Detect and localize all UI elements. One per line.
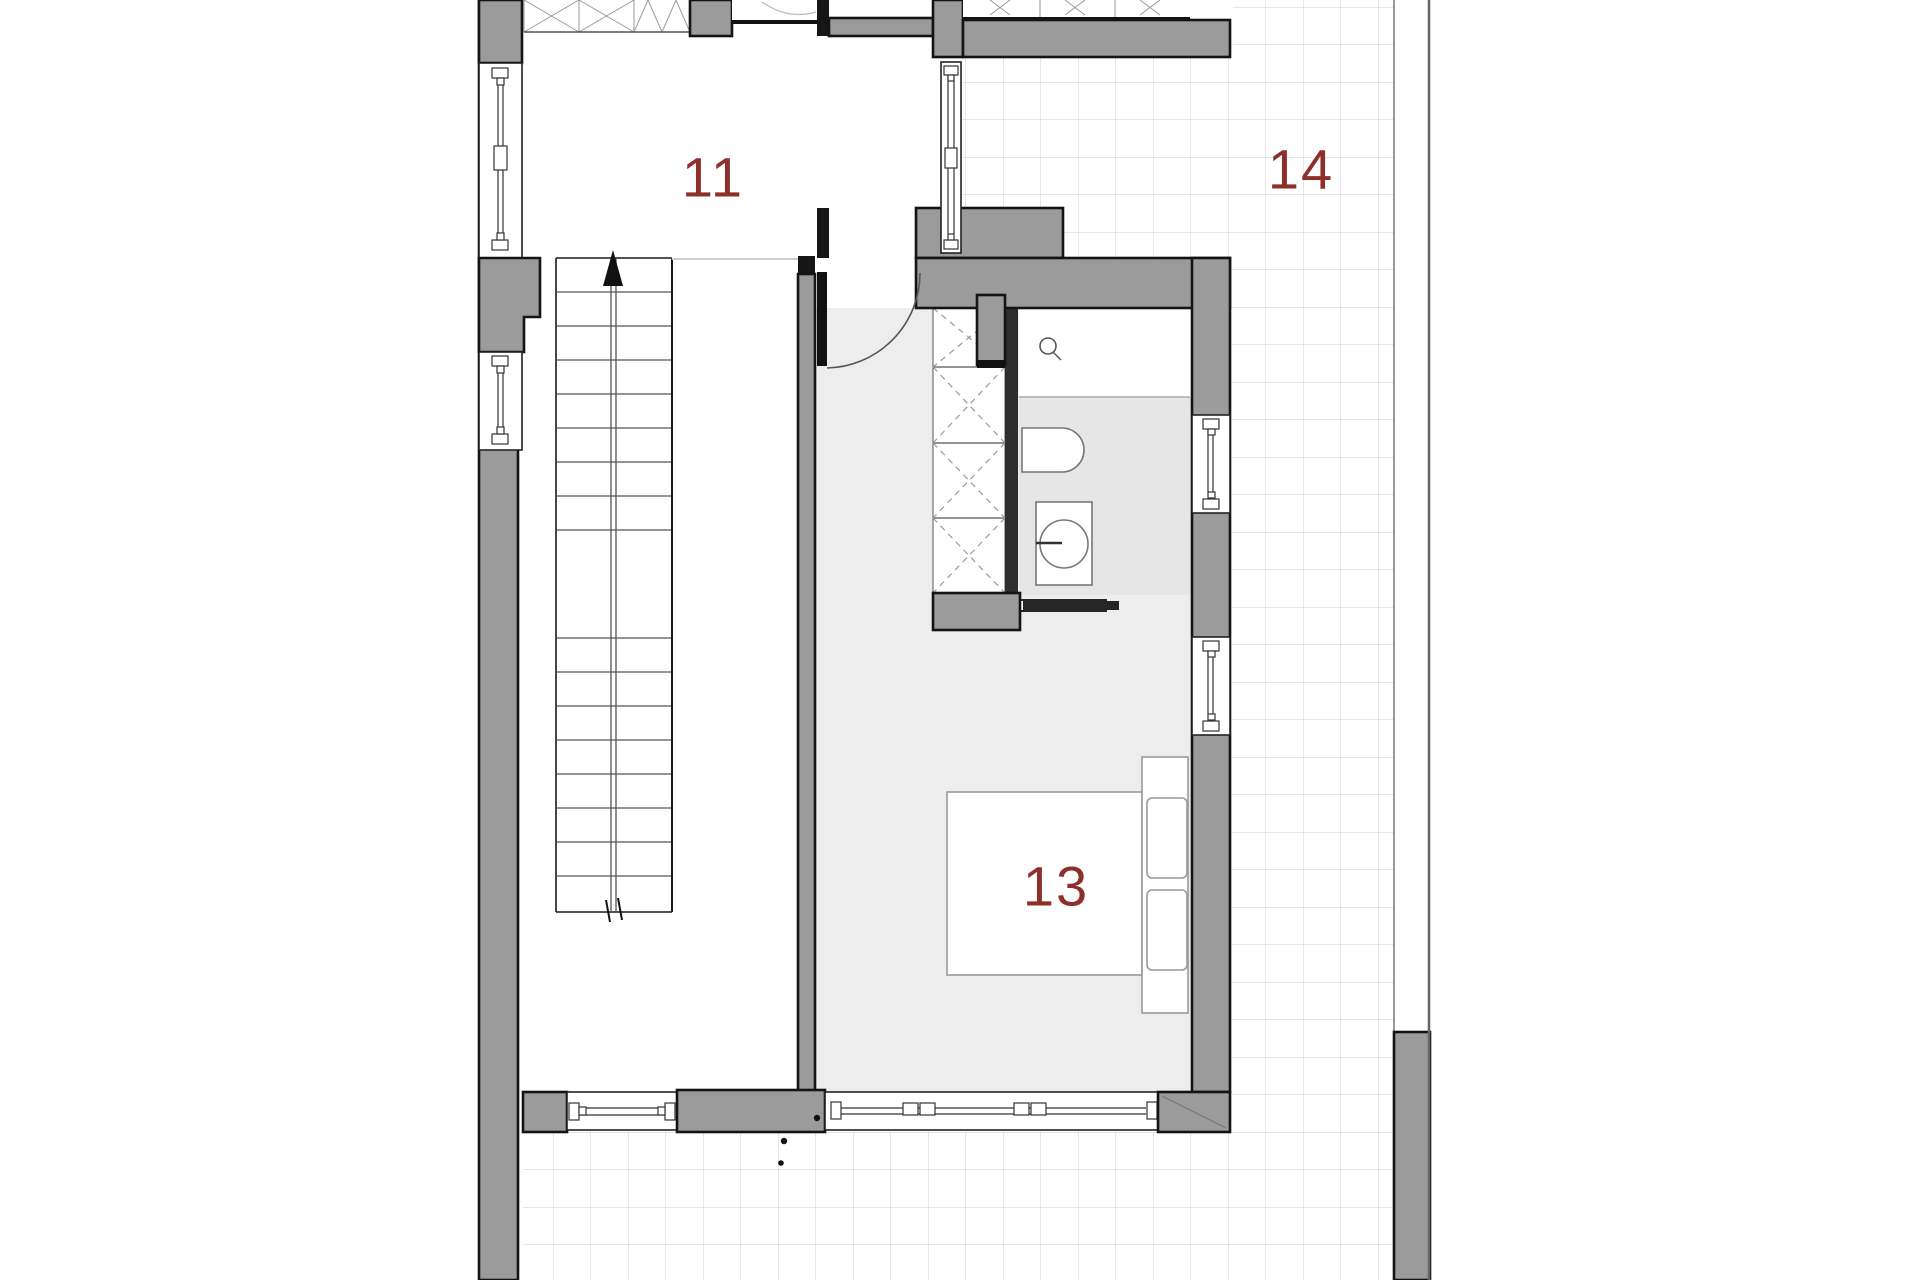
boundary-wall <box>1394 1032 1430 1280</box>
floor-plan-canvas: 11 13 14 <box>0 0 1920 1280</box>
bottom-terrace-tiles <box>523 1132 1393 1280</box>
window <box>941 62 961 253</box>
door-leaf <box>817 272 827 366</box>
window <box>567 1092 677 1130</box>
floor-plan-drawing <box>0 0 1920 1280</box>
upper-terrace-tiles <box>963 0 1190 20</box>
window <box>479 352 522 450</box>
top-wall-band <box>963 20 1230 57</box>
bottom-exterior-wall <box>523 1090 1230 1132</box>
sliding-door <box>825 1092 1158 1130</box>
window <box>1192 637 1230 735</box>
closet-shaft-stub <box>977 295 1005 368</box>
wall-segment <box>677 1090 825 1132</box>
window <box>1192 415 1230 513</box>
top-wall-band <box>829 18 933 36</box>
wall-cap <box>798 256 815 274</box>
left-exterior-wall <box>479 0 540 1280</box>
window <box>479 63 522 258</box>
canopy-lattice <box>524 0 690 32</box>
wall-pier <box>479 0 522 63</box>
top-wall-block <box>933 0 963 57</box>
stair-treads <box>557 292 671 876</box>
bathroom-top-wall <box>916 258 1230 308</box>
staircase <box>556 250 798 922</box>
stair-break-marks <box>606 898 622 922</box>
wall-jamb <box>817 208 829 258</box>
wall-jamb <box>817 0 829 36</box>
hall-partition-wall <box>798 274 815 1092</box>
room-label-11: 11 <box>682 145 744 210</box>
closet-back-wall <box>1005 308 1018 595</box>
bed-pillow <box>1147 798 1187 878</box>
sink-vanity-icon <box>1036 502 1092 585</box>
toilet-icon <box>1022 428 1084 472</box>
stair-direction-arrow <box>603 250 623 286</box>
top-wall-block <box>690 0 732 36</box>
wall-pier <box>523 1092 567 1132</box>
bed-headboard <box>1142 757 1188 1013</box>
closet-bottom-wall <box>933 593 1020 630</box>
wall-pier <box>479 258 540 352</box>
stair-center-rail <box>611 258 616 912</box>
plot-boundary <box>1394 0 1430 1280</box>
middle-wall-upper <box>916 208 1063 258</box>
room-label-14: 14 <box>1268 137 1334 202</box>
neighbour-room <box>732 0 817 24</box>
bed-pillow <box>1147 890 1187 970</box>
room-label-13: 13 <box>1023 854 1089 919</box>
wall-corner <box>1158 1092 1230 1132</box>
shower-glass-partition <box>1013 599 1119 612</box>
